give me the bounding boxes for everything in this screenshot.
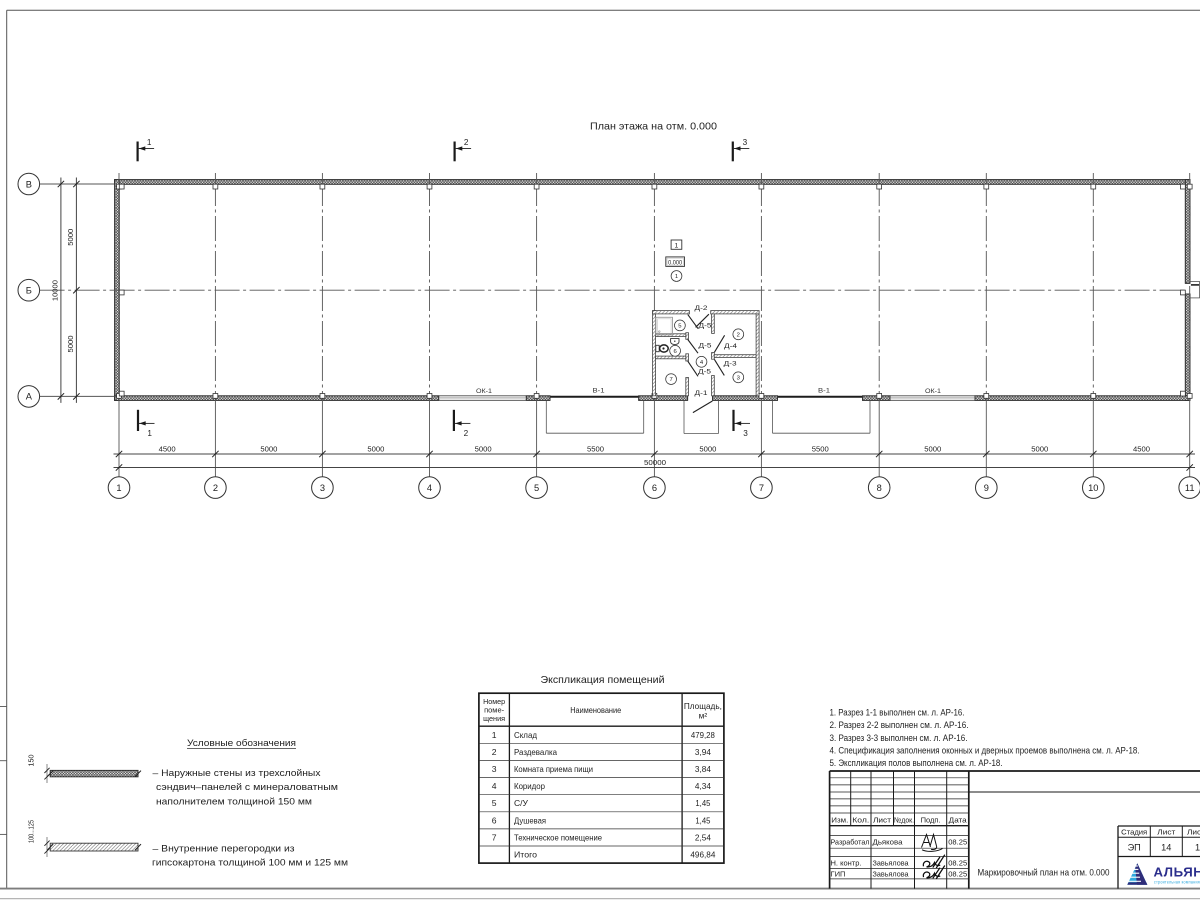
svg-text:Изм.: Изм. bbox=[831, 815, 848, 824]
svg-text:4: 4 bbox=[427, 483, 432, 493]
svg-text:11: 11 bbox=[1185, 483, 1195, 493]
svg-text:Завьялова: Завьялова bbox=[873, 859, 910, 868]
svg-text:5: 5 bbox=[534, 483, 539, 493]
svg-text:3: 3 bbox=[743, 138, 748, 147]
svg-text:08.25: 08.25 bbox=[948, 859, 967, 868]
svg-text:4500: 4500 bbox=[1133, 445, 1150, 454]
svg-text:5000: 5000 bbox=[699, 445, 716, 454]
svg-text:гипсокартона толщиной 100 мм и: гипсокартона толщиной 100 мм и 125 мм bbox=[152, 858, 348, 869]
svg-text:наполнителем толщиной 150 мм: наполнителем толщиной 150 мм bbox=[156, 796, 312, 807]
svg-text:Экспликация помещений: Экспликация помещений bbox=[541, 675, 665, 686]
svg-text:План этажа на отм. 0.000: План этажа на отм. 0.000 bbox=[590, 121, 717, 132]
svg-text:Дата: Дата bbox=[949, 815, 968, 824]
svg-text:4500: 4500 bbox=[159, 445, 176, 454]
svg-text:Наименование: Наименование bbox=[570, 705, 621, 715]
svg-text:4: 4 bbox=[492, 781, 497, 791]
svg-text:479,28: 479,28 bbox=[691, 730, 715, 740]
svg-text:3: 3 bbox=[492, 764, 497, 774]
svg-text:В: В bbox=[26, 179, 32, 189]
svg-text:– Внутренние перегородки из: – Внутренние перегородки из bbox=[153, 843, 296, 854]
svg-text:14: 14 bbox=[1161, 843, 1171, 853]
svg-text:м²: м² bbox=[699, 710, 708, 720]
svg-text:5000: 5000 bbox=[66, 336, 75, 353]
svg-text:Кол.: Кол. bbox=[852, 815, 869, 824]
svg-text:В-1: В-1 bbox=[818, 388, 830, 395]
svg-text:1,45: 1,45 bbox=[695, 798, 710, 808]
svg-text:2: 2 bbox=[737, 332, 740, 338]
svg-text:Коридор: Коридор bbox=[514, 781, 545, 791]
svg-text:5000: 5000 bbox=[367, 445, 384, 454]
svg-text:2,54: 2,54 bbox=[695, 832, 711, 842]
svg-text:5000: 5000 bbox=[924, 445, 941, 454]
svg-text:3: 3 bbox=[743, 429, 748, 438]
svg-text:2: 2 bbox=[213, 483, 218, 493]
svg-text:5500: 5500 bbox=[587, 445, 604, 454]
svg-text:Подп.: Подп. bbox=[921, 815, 941, 824]
svg-text:В-1: В-1 bbox=[593, 388, 605, 395]
svg-text:4. Спецификация заполнения око: 4. Спецификация заполнения оконных и две… bbox=[830, 746, 1140, 756]
svg-text:АЛЬЯНС: АЛЬЯНС bbox=[1154, 864, 1200, 879]
svg-text:7: 7 bbox=[759, 483, 764, 493]
svg-text:5000: 5000 bbox=[1031, 445, 1048, 454]
svg-text:строительная компания: строительная компания bbox=[1154, 879, 1200, 884]
svg-text:А: А bbox=[26, 392, 33, 402]
svg-text:Д-5: Д-5 bbox=[699, 323, 713, 330]
svg-text:0.000: 0.000 bbox=[668, 260, 683, 266]
svg-text:1: 1 bbox=[675, 274, 678, 280]
svg-text:150: 150 bbox=[29, 754, 36, 766]
svg-text:2: 2 bbox=[464, 138, 469, 147]
svg-text:08.25: 08.25 bbox=[948, 870, 967, 879]
svg-text:50000: 50000 bbox=[644, 458, 666, 467]
svg-text:Д-3: Д-3 bbox=[724, 360, 738, 367]
svg-text:9: 9 bbox=[984, 483, 989, 493]
svg-text:08.25: 08.25 bbox=[948, 838, 967, 847]
svg-text:Лист: Лист bbox=[1157, 828, 1176, 837]
svg-text:6: 6 bbox=[492, 815, 497, 825]
svg-text:10: 10 bbox=[1088, 483, 1098, 493]
svg-text:7: 7 bbox=[669, 377, 672, 383]
svg-text:Разработал: Разработал bbox=[831, 838, 870, 847]
svg-text:3: 3 bbox=[320, 483, 325, 493]
svg-text:Н. контр.: Н. контр. bbox=[831, 859, 862, 868]
svg-text:10000: 10000 bbox=[50, 280, 59, 301]
svg-text:1: 1 bbox=[492, 730, 497, 740]
svg-text:1: 1 bbox=[147, 429, 152, 438]
svg-text:щения: щения bbox=[483, 714, 505, 723]
svg-text:ОК-1: ОК-1 bbox=[925, 388, 941, 395]
svg-text:100...125: 100...125 bbox=[29, 820, 36, 843]
svg-text:Д-5: Д-5 bbox=[698, 368, 712, 375]
svg-text:Дьякова: Дьякова bbox=[873, 838, 904, 847]
svg-text:3. Разрез 3-3 выполнен см. л.: 3. Разрез 3-3 выполнен см. л. АР-16. bbox=[830, 733, 968, 743]
svg-text:6: 6 bbox=[652, 483, 657, 493]
svg-text:Лист: Лист bbox=[1187, 828, 1200, 837]
svg-text:5: 5 bbox=[492, 798, 497, 808]
svg-text:Д-2: Д-2 bbox=[695, 305, 709, 312]
svg-text:8: 8 bbox=[877, 483, 882, 493]
svg-text:Условные обозначения: Условные обозначения bbox=[187, 738, 296, 749]
svg-text:ГИП: ГИП bbox=[831, 870, 846, 879]
svg-text:Душевая: Душевая bbox=[514, 815, 546, 825]
svg-text:3,94: 3,94 bbox=[695, 747, 711, 757]
svg-text:С/У: С/У bbox=[514, 798, 529, 808]
svg-text:ОК-1: ОК-1 bbox=[476, 388, 492, 395]
svg-text:Лист: Лист bbox=[873, 815, 892, 824]
svg-text:Завьялова: Завьялова bbox=[873, 870, 910, 879]
svg-text:Маркировочный план на отм. 0.0: Маркировочный план на отм. 0.000 bbox=[978, 867, 1110, 878]
svg-text:2: 2 bbox=[492, 747, 497, 757]
svg-text:5000: 5000 bbox=[66, 229, 75, 246]
svg-text:1: 1 bbox=[116, 483, 121, 493]
svg-text:№док.: №док. bbox=[894, 815, 914, 824]
svg-text:ЭП: ЭП bbox=[1128, 843, 1141, 853]
svg-text:Итого: Итого bbox=[514, 850, 537, 860]
svg-text:1: 1 bbox=[675, 242, 679, 249]
svg-text:– Наружные стены из трехслойны: – Наружные стены из трехслойных bbox=[153, 768, 321, 779]
svg-text:Раздевалка: Раздевалка bbox=[514, 747, 557, 757]
svg-text:496,84: 496,84 bbox=[690, 850, 715, 860]
svg-text:3,84: 3,84 bbox=[695, 764, 711, 774]
svg-text:Комната приема пищи: Комната приема пищи bbox=[514, 764, 593, 774]
svg-text:1: 1 bbox=[147, 138, 152, 147]
svg-text:4,34: 4,34 bbox=[695, 781, 711, 791]
svg-text:1: 1 bbox=[1195, 843, 1200, 853]
svg-text:Д-1: Д-1 bbox=[695, 390, 709, 397]
svg-text:Склад: Склад bbox=[514, 730, 537, 740]
svg-text:5000: 5000 bbox=[475, 445, 492, 454]
svg-text:1,45: 1,45 bbox=[695, 815, 710, 825]
svg-text:5500: 5500 bbox=[812, 445, 829, 454]
svg-text:2: 2 bbox=[464, 429, 469, 438]
svg-text:Д-5: Д-5 bbox=[699, 343, 713, 350]
svg-text:Д-4: Д-4 bbox=[724, 343, 738, 350]
svg-text:1. Разрез 1-1 выполнен см. л.: 1. Разрез 1-1 выполнен см. л. АР-16. bbox=[830, 708, 965, 718]
svg-text:Техническое помещение: Техническое помещение bbox=[514, 832, 602, 842]
svg-text:сэндвич–панелей с минераловатн: сэндвич–панелей с минераловатным bbox=[156, 782, 338, 793]
svg-text:2. Разрез 2-2 выполнен см. л.: 2. Разрез 2-2 выполнен см. л. АР-16. bbox=[830, 720, 969, 730]
svg-text:Стадия: Стадия bbox=[1121, 828, 1147, 837]
svg-text:Б: Б bbox=[26, 286, 32, 296]
svg-text:5000: 5000 bbox=[260, 445, 277, 454]
svg-text:5. Экспликация полов выполнена: 5. Экспликация полов выполнена см. л. АР… bbox=[830, 758, 1003, 768]
svg-text:7: 7 bbox=[492, 832, 497, 842]
